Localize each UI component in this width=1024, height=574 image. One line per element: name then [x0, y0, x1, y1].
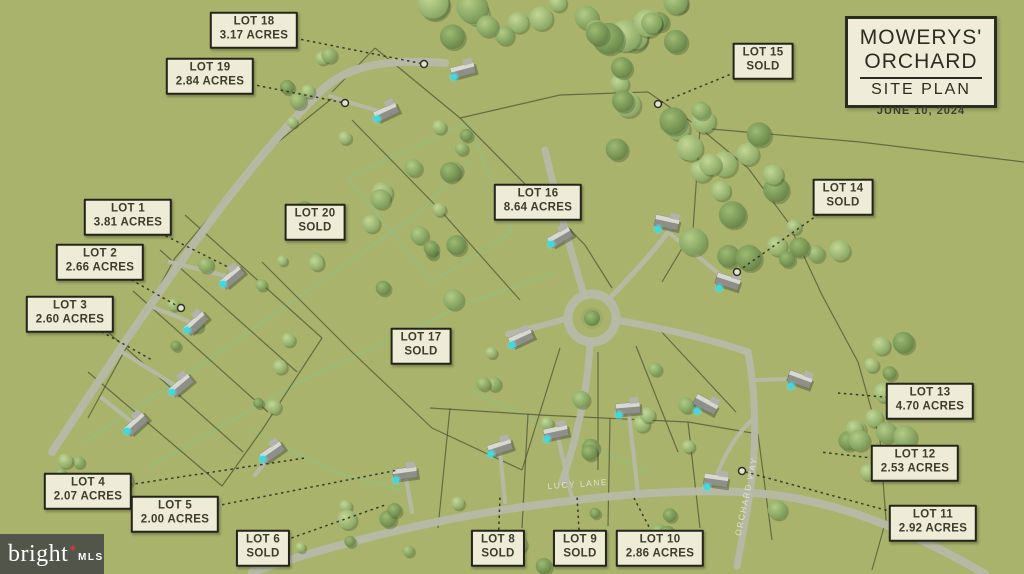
- pool-icon: [486, 449, 496, 459]
- pool-icon: [182, 325, 192, 335]
- pool-icon: [258, 454, 268, 464]
- pool-icon: [218, 279, 228, 289]
- watermark-suffix: MLS: [78, 552, 104, 563]
- pool-icon: [546, 239, 556, 249]
- plan-date: JUNE 10, 2024: [845, 105, 997, 117]
- pool-icon: [122, 426, 132, 436]
- pool-icon: [542, 434, 552, 444]
- title-line-1: MOWERYS': [852, 26, 990, 50]
- title-line-2: ORCHARD: [852, 50, 990, 74]
- pool-icon: [714, 283, 724, 293]
- watermark-brand: bright: [8, 541, 68, 568]
- pool-icon: [786, 381, 796, 391]
- pool-icon: [391, 475, 401, 485]
- pool-icon: [614, 410, 624, 420]
- pool-icon: [449, 72, 459, 82]
- pool-icon: [507, 340, 517, 350]
- pool-icon: [167, 387, 177, 397]
- pool-icon: [653, 224, 663, 234]
- asterisk-icon: ✱: [69, 544, 76, 553]
- pool-icon: [692, 406, 702, 416]
- title-block: MOWERYS' ORCHARD SITE PLAN: [845, 16, 997, 108]
- site-plan-image: { "colors": { "background": "#a9b36c", "…: [0, 0, 1024, 574]
- pool-icon: [702, 482, 712, 492]
- title-line-3: SITE PLAN: [852, 81, 990, 99]
- watermark-brightmls: bright ✱ MLS: [0, 534, 104, 574]
- pool-icon: [372, 114, 382, 124]
- title-divider: [860, 77, 982, 79]
